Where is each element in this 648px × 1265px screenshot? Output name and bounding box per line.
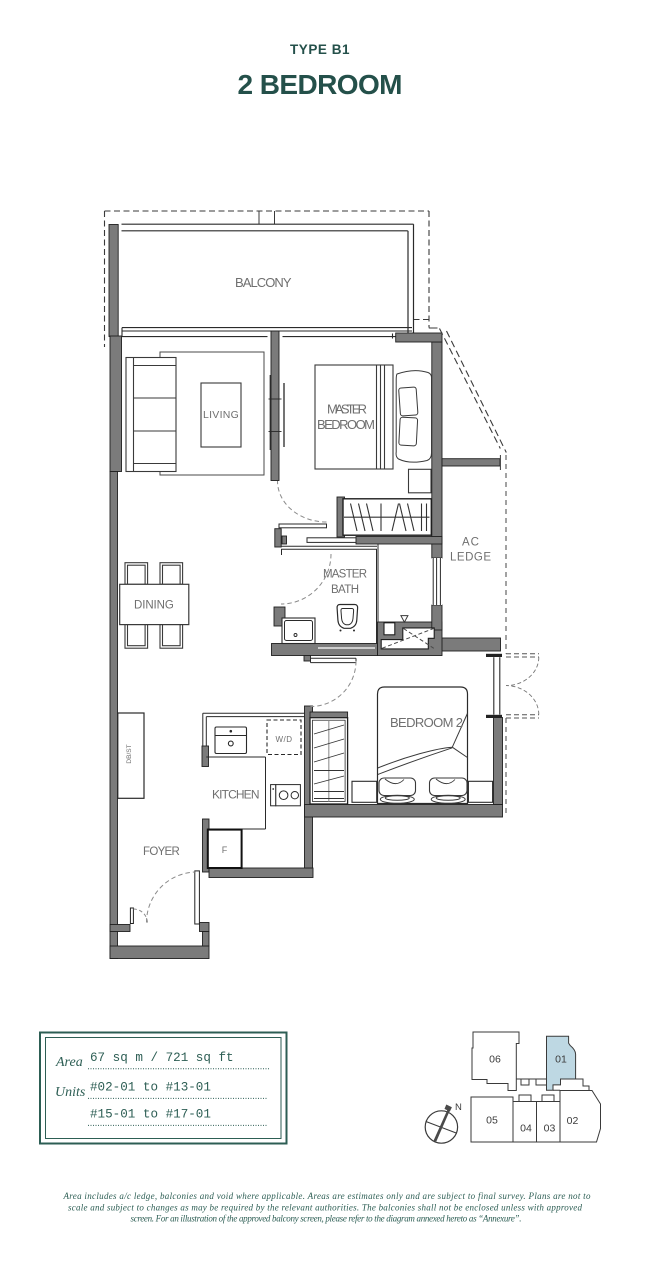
svg-text:KITCHEN: KITCHEN [212, 788, 261, 802]
svg-text:BEDROOM 2: BEDROOM 2 [390, 715, 464, 730]
svg-text:Area includes a/c ledge, balco: Area includes a/c ledge, balconies and v… [63, 1191, 592, 1201]
svg-text:DB/ST: DB/ST [126, 744, 133, 763]
svg-text:02: 02 [567, 1115, 579, 1127]
svg-text:TYPE B1: TYPE B1 [290, 42, 352, 57]
svg-text:06: 06 [489, 1054, 501, 1066]
svg-text:2 BEDROOM: 2 BEDROOM [238, 69, 405, 100]
svg-text:W/D: W/D [275, 735, 292, 744]
svg-text:LEDGE: LEDGE [450, 552, 492, 564]
svg-text:67 sq m / 721 sq ft: 67 sq m / 721 sq ft [90, 1051, 234, 1065]
svg-text:MASTER: MASTER [323, 568, 368, 580]
svg-text:DINING: DINING [134, 600, 175, 612]
svg-text:screen. For an illustration of: screen. For an illustration of the appro… [131, 1214, 522, 1224]
svg-text:05: 05 [486, 1115, 498, 1127]
svg-text:04: 04 [520, 1123, 532, 1135]
svg-text:N: N [455, 1102, 462, 1113]
svg-text:MASTER: MASTER [327, 402, 368, 417]
svg-text:FOYER: FOYER [143, 846, 181, 858]
svg-text:#02-01 to #13-01: #02-01 to #13-01 [90, 1081, 211, 1095]
svg-text:LIVING: LIVING [203, 409, 240, 421]
svg-text:BEDROOM: BEDROOM [317, 417, 376, 432]
svg-text:01: 01 [555, 1054, 567, 1066]
svg-text:Units: Units [55, 1085, 86, 1100]
svg-text:Area: Area [55, 1055, 83, 1070]
svg-text:03: 03 [544, 1123, 556, 1135]
svg-text:AC: AC [462, 537, 480, 549]
svg-text:#15-01 to #17-01: #15-01 to #17-01 [90, 1108, 211, 1122]
svg-text:BATH: BATH [331, 584, 360, 596]
svg-text:BALCONY: BALCONY [235, 275, 293, 290]
svg-text:scale and subject to changes a: scale and subject to changes as may be r… [68, 1203, 583, 1213]
svg-text:F: F [222, 845, 228, 855]
